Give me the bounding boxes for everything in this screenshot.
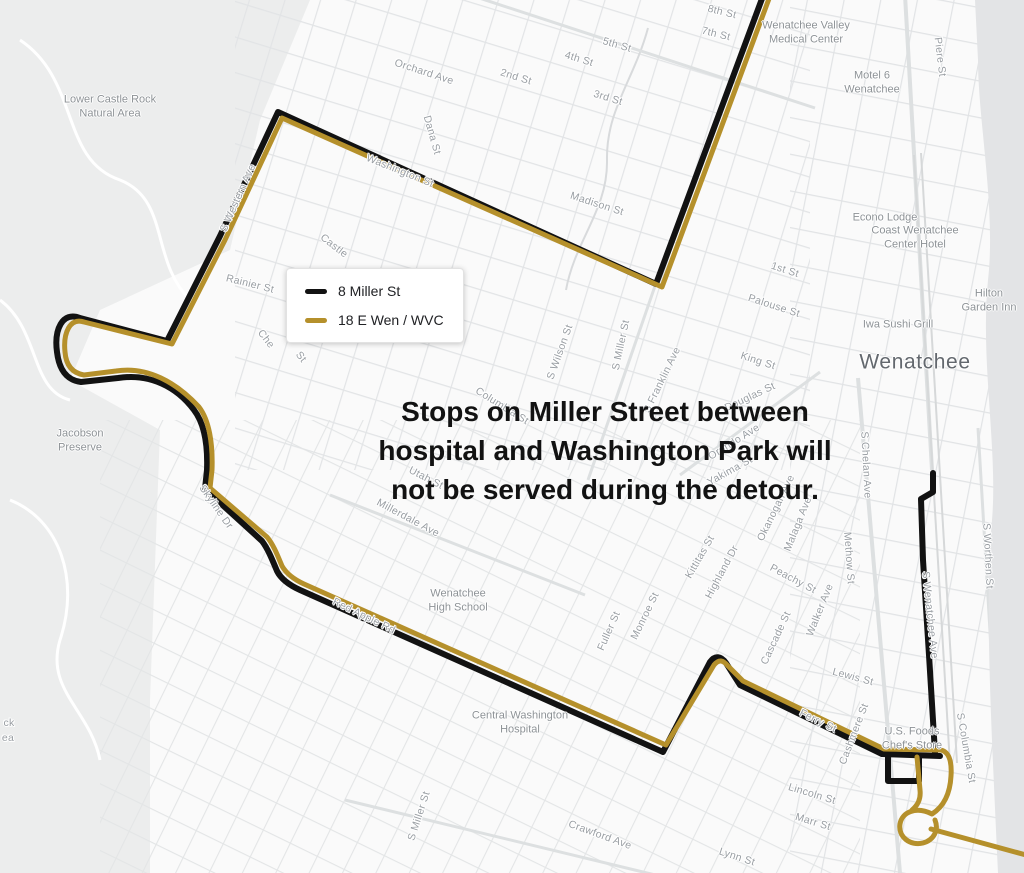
- legend-item-18-e-wen-wvc: 18 E Wen / WVC: [305, 312, 445, 328]
- poi-label: U.S. FoodsChef's Store: [882, 726, 942, 753]
- poi-label: Wenatchee ValleyMedical Center: [762, 20, 850, 47]
- poi-label: WenatcheeHigh School: [428, 588, 487, 615]
- poi-label: Central WashingtonHospital: [472, 710, 568, 737]
- detour-map: 8th St7th St5th St4th St2nd St3rd StOrch…: [0, 0, 1024, 873]
- annotation-line: Stops on Miller Street between: [348, 392, 862, 431]
- street-label: ea: [2, 732, 14, 744]
- poi-label: HiltonGarden Inn: [961, 288, 1016, 315]
- street-label: ck: [3, 717, 14, 729]
- route-8-swatch-icon: [305, 289, 327, 294]
- legend-item-8-miller-st: 8 Miller St: [305, 283, 445, 299]
- poi-label: Coast WenatcheeCenter Hotel: [871, 225, 958, 252]
- poi-label: Motel 6Wenatchee: [844, 70, 899, 97]
- annotation-line: hospital and Washington Park will: [348, 431, 862, 470]
- legend-item-label: 18 E Wen / WVC: [338, 312, 444, 328]
- poi-label: JacobsonPreserve: [56, 428, 103, 455]
- poi-label: Lower Castle RockNatural Area: [64, 94, 156, 121]
- legend-item-label: 8 Miller St: [338, 283, 400, 299]
- poi-label: Iwa Sushi Grill: [863, 318, 933, 332]
- route-legend: 8 Miller St 18 E Wen / WVC: [286, 268, 464, 343]
- detour-annotation: Stops on Miller Street between hospital …: [348, 392, 862, 509]
- route-18-swatch-icon: [305, 318, 327, 323]
- city-label: Wenatchee: [859, 355, 970, 369]
- annotation-line: not be served during the detour.: [348, 470, 862, 509]
- poi-label: Econo Lodge: [853, 211, 918, 225]
